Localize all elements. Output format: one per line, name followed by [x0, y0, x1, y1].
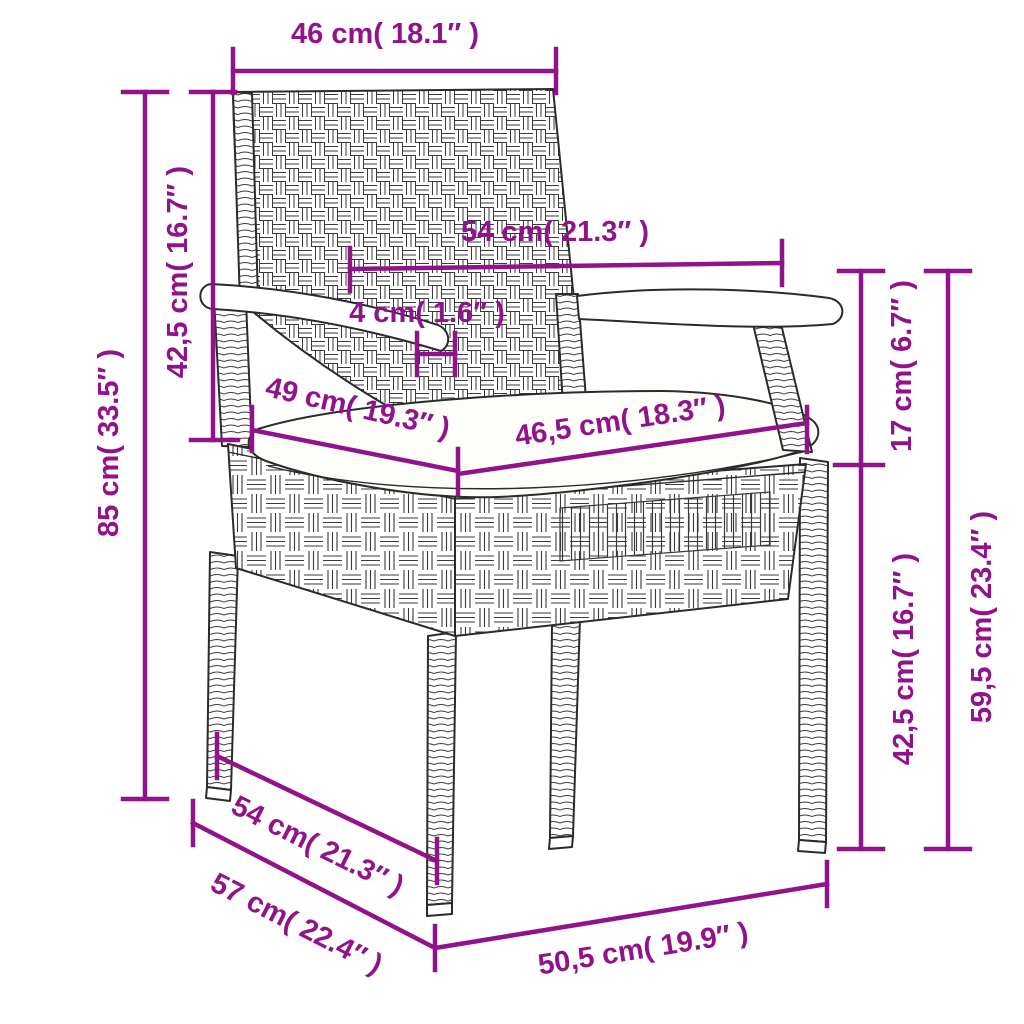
dim-armrest-total-height-label: 59,5 cm( 23.4″ ) [966, 511, 998, 723]
dim-seat-height-label: 42,5 cm( 16.7″ ) [888, 553, 920, 765]
dim-total-height-label: 85 cm( 33.5″ ) [93, 349, 125, 537]
dim-seat-height: 42,5 cm( 16.7″ ) [839, 465, 920, 849]
chair-leg-rear-left-cap [206, 787, 231, 801]
dim-backrest-height-label: 42,5 cm( 16.7″ ) [162, 166, 194, 378]
dim-armrest-above-seat-label: 17 cm( 6.7″ ) [886, 280, 918, 452]
chair-leg-middle [550, 618, 580, 838]
dim-backrest-width-label: 46 cm( 18.1″ ) [291, 18, 479, 50]
chair-front-left-post [214, 298, 252, 447]
dim-armrest-span-label: 54 cm( 21.3″ ) [461, 216, 649, 248]
dim-base-width: 50,5 cm( 19.9″ ) [435, 862, 827, 982]
chair-leg-middle-cap [549, 836, 573, 849]
dim-armrest-thickness-label: 4 cm( 1.6″ ) [349, 297, 505, 329]
chair-right-armrest [577, 289, 842, 326]
dim-armrest-above-seat: 17 cm( 6.7″ ) [835, 271, 918, 465]
chair-leg-right [799, 458, 828, 842]
diagram-canvas: 46 cm( 18.1″ ) 85 cm( 33.5″ ) 42,5 cm( 1… [0, 0, 1024, 1024]
chair-leg-front [427, 632, 456, 905]
dim-backrest-width: 46 cm( 18.1″ ) [233, 18, 556, 93]
dim-total-height: 85 cm( 33.5″ ) [93, 92, 167, 799]
chair-leg-right-cap [798, 840, 826, 853]
dim-armrest-total-height: 59,5 cm( 23.4″ ) [926, 271, 998, 849]
dim-depth-upper: 54 cm( 21.3″ ) [217, 734, 437, 902]
chair-leg-rear-left [207, 552, 238, 790]
chair-leg-front-cap [427, 903, 452, 916]
chair-dimension-diagram: 46 cm( 18.1″ ) 85 cm( 33.5″ ) 42,5 cm( 1… [0, 0, 1024, 1024]
